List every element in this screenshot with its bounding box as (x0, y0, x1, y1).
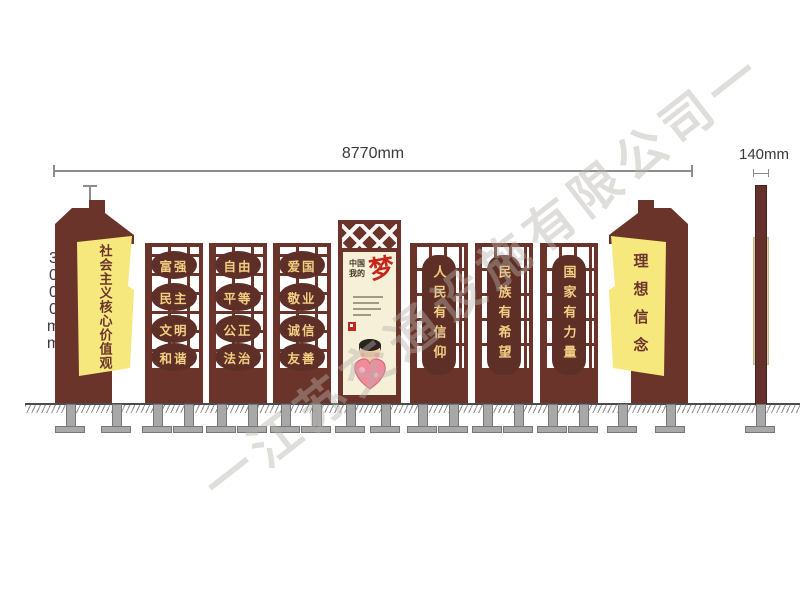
medallion: 自由 (215, 251, 261, 279)
medallion: 民主 (151, 283, 197, 311)
medallion: 公正 (215, 315, 261, 343)
poster-title: 中国 我的 (349, 259, 365, 279)
foundation-foot (55, 404, 85, 432)
foot-base-plate (503, 426, 533, 433)
slogan-plaque: 民族有希望 (487, 255, 521, 375)
left-totem-panel: 社会主义核心价值观 (55, 198, 135, 403)
signage-design-drawing: 8770mm 3000mm 140mm 社会主义核心价值观 富强 民主 文明 和… (0, 0, 800, 600)
foundation-foot (568, 404, 598, 432)
poster-title-line1: 中国 (349, 259, 365, 269)
slogan-text: 国家有力量 (560, 265, 579, 365)
foot-post (346, 404, 356, 428)
red-seal-icon (348, 322, 356, 331)
foundation-foot (206, 404, 236, 432)
foot-post (66, 404, 76, 428)
left-totem-text: 社会主义核心价值观 (79, 242, 131, 372)
foundation-foot (745, 404, 775, 432)
right-totem-panel: 理想信念 (608, 198, 688, 403)
poem-line (353, 302, 379, 304)
foundation-foot (237, 404, 267, 432)
foot-base-plate (335, 426, 365, 433)
china-dream-poster: 中国 我的 梦 (343, 252, 396, 395)
side-view-post (755, 185, 767, 405)
foot-post (483, 404, 493, 428)
slogan-plaque: 人民有信仰 (422, 255, 456, 375)
medallion: 友善 (279, 343, 325, 371)
openwork-crest (342, 224, 397, 248)
foot-post (618, 404, 628, 428)
poster-title-line2: 我的 (349, 269, 365, 279)
foundation-foot (607, 404, 637, 432)
foot-base-plate (655, 426, 685, 433)
foot-post (449, 404, 459, 428)
poem-line (353, 296, 383, 298)
foot-base-plate (270, 426, 300, 433)
foot-base-plate (55, 426, 85, 433)
poem-line (353, 314, 371, 316)
poem-line (353, 308, 381, 310)
foot-post (184, 404, 194, 428)
foot-post (548, 404, 558, 428)
side-width-tick-right (768, 169, 769, 177)
slogan-panel-1: 人民有信仰 (410, 243, 468, 403)
foot-post (514, 404, 524, 428)
foot-base-plate (745, 426, 775, 433)
foot-base-plate (537, 426, 567, 433)
value-panel-2: 自由 平等 公正 法治 (209, 243, 267, 403)
medallion: 爱国 (279, 251, 325, 279)
foot-base-plate (173, 426, 203, 433)
medallion: 平等 (215, 283, 261, 311)
value-panel-3: 爱国 敬业 诚信 友善 (273, 243, 331, 403)
foot-post (112, 404, 122, 428)
foundation-foot (301, 404, 331, 432)
foot-base-plate (472, 426, 502, 433)
foot-base-plate (607, 426, 637, 433)
foot-base-plate (206, 426, 236, 433)
foot-base-plate (142, 426, 172, 433)
foot-post (248, 404, 258, 428)
foot-base-plate (568, 426, 598, 433)
poster-panel: 中国 我的 梦 (338, 220, 401, 403)
dream-calligraphy: 梦 (366, 252, 396, 287)
side-width-dimension-label: 140mm (733, 146, 795, 163)
foot-post (381, 404, 391, 428)
child-illustration (347, 337, 393, 391)
foundation-foot (655, 404, 685, 432)
value-panel-1: 富强 民主 文明 和谐 (145, 243, 203, 403)
width-dimension-label: 8770mm (53, 145, 693, 163)
foundation-foot (537, 404, 567, 432)
foot-post (418, 404, 428, 428)
width-dimension-tick-left (53, 165, 55, 177)
medallion: 文明 (151, 315, 197, 343)
foot-base-plate (237, 426, 267, 433)
foot-post (217, 404, 227, 428)
foot-base-plate (407, 426, 437, 433)
foot-post (666, 404, 676, 428)
foundation-foot (142, 404, 172, 432)
foot-base-plate (438, 426, 468, 433)
medallion: 和谐 (151, 343, 197, 371)
width-dimension-line (53, 170, 693, 172)
right-totem-text: 理想信念 (614, 246, 666, 372)
foundation-foot (270, 404, 300, 432)
height-dimension-tick-top (83, 185, 97, 187)
foot-post (312, 404, 322, 428)
foot-base-plate (101, 426, 131, 433)
medallion: 诚信 (279, 315, 325, 343)
foundation-foot (407, 404, 437, 432)
side-width-tick-left (753, 169, 754, 177)
slogan-panel-3: 国家有力量 (540, 243, 598, 403)
foundation-foot (438, 404, 468, 432)
slogan-plaque: 国家有力量 (552, 255, 586, 375)
foundation-foot (503, 404, 533, 432)
foot-post (153, 404, 163, 428)
foot-post (579, 404, 589, 428)
width-dimension-tick-right (691, 165, 693, 177)
medallion: 法治 (215, 343, 261, 371)
foot-base-plate (370, 426, 400, 433)
slogan-panel-2: 民族有希望 (475, 243, 533, 403)
foundation-foot (335, 404, 365, 432)
slogan-text: 民族有希望 (495, 265, 514, 365)
foot-post (281, 404, 291, 428)
foundation-foot (472, 404, 502, 432)
medallion: 富强 (151, 251, 197, 279)
foundation-foot (101, 404, 131, 432)
side-width-dimension-line (753, 173, 769, 174)
foundation-foot (173, 404, 203, 432)
foot-post (756, 404, 766, 428)
slogan-text: 人民有信仰 (430, 265, 449, 365)
foot-base-plate (301, 426, 331, 433)
medallion: 敬业 (279, 283, 325, 311)
foundation-foot (370, 404, 400, 432)
